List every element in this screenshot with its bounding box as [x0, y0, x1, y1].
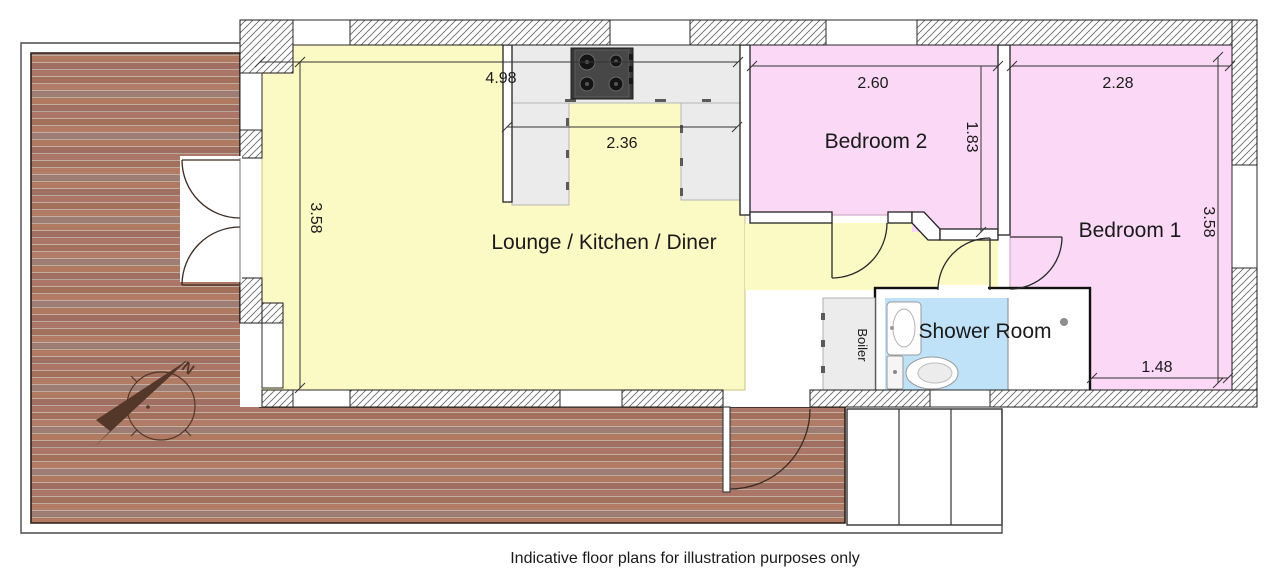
bedroom2-left-wall — [740, 45, 750, 215]
toilet-icon — [887, 356, 958, 389]
dim-bedroom2-width: 2.60 — [857, 75, 888, 92]
dim-bedroom2-depth: 1.83 — [963, 121, 980, 152]
window — [293, 390, 350, 407]
window — [826, 20, 917, 45]
drain-icon — [1060, 318, 1068, 326]
lounge-label: Lounge / Kitchen / Diner — [491, 231, 716, 254]
shower-room: Shower Room — [875, 288, 1090, 400]
window — [240, 73, 262, 130]
boiler-label: Boiler — [855, 328, 870, 362]
floor-plan-page: Shower Room Boiler — [0, 0, 1280, 586]
steps — [847, 409, 1002, 525]
caption: Indicative floor plans for illustration … — [510, 550, 860, 567]
window — [560, 390, 622, 407]
window — [1232, 165, 1257, 268]
counter-right-leg — [681, 103, 740, 200]
bedroom2-bottom-wall — [888, 212, 912, 223]
french-doors — [180, 156, 242, 287]
dim-kitchen-width: 2.36 — [606, 135, 637, 152]
bedroom2-label: Bedroom 2 — [825, 130, 928, 153]
dim-bedroom1-width: 2.28 — [1102, 75, 1133, 92]
bedroom-divider-wall — [998, 45, 1010, 235]
dim-lounge-width: 4.98 — [485, 70, 516, 87]
window — [610, 20, 690, 45]
boiler-cupboard: Boiler — [821, 298, 875, 393]
shower-room-label: Shower Room — [918, 320, 1051, 343]
window — [930, 390, 990, 407]
window — [262, 323, 283, 388]
bedroom1-label: Bedroom 1 — [1079, 219, 1182, 242]
window — [293, 20, 350, 45]
counter-left-leg — [512, 103, 569, 205]
floor-plan: Shower Room Boiler — [0, 0, 1280, 586]
sink-icon — [887, 302, 921, 355]
dim-bedroom1-lower-width: 1.48 — [1141, 359, 1172, 376]
bedroom2-bottom-wall — [750, 212, 832, 223]
dim-bedroom1-depth: 3.58 — [1200, 206, 1217, 237]
dim-lounge-depth: 3.58 — [307, 202, 324, 233]
hob-icon — [571, 48, 633, 99]
